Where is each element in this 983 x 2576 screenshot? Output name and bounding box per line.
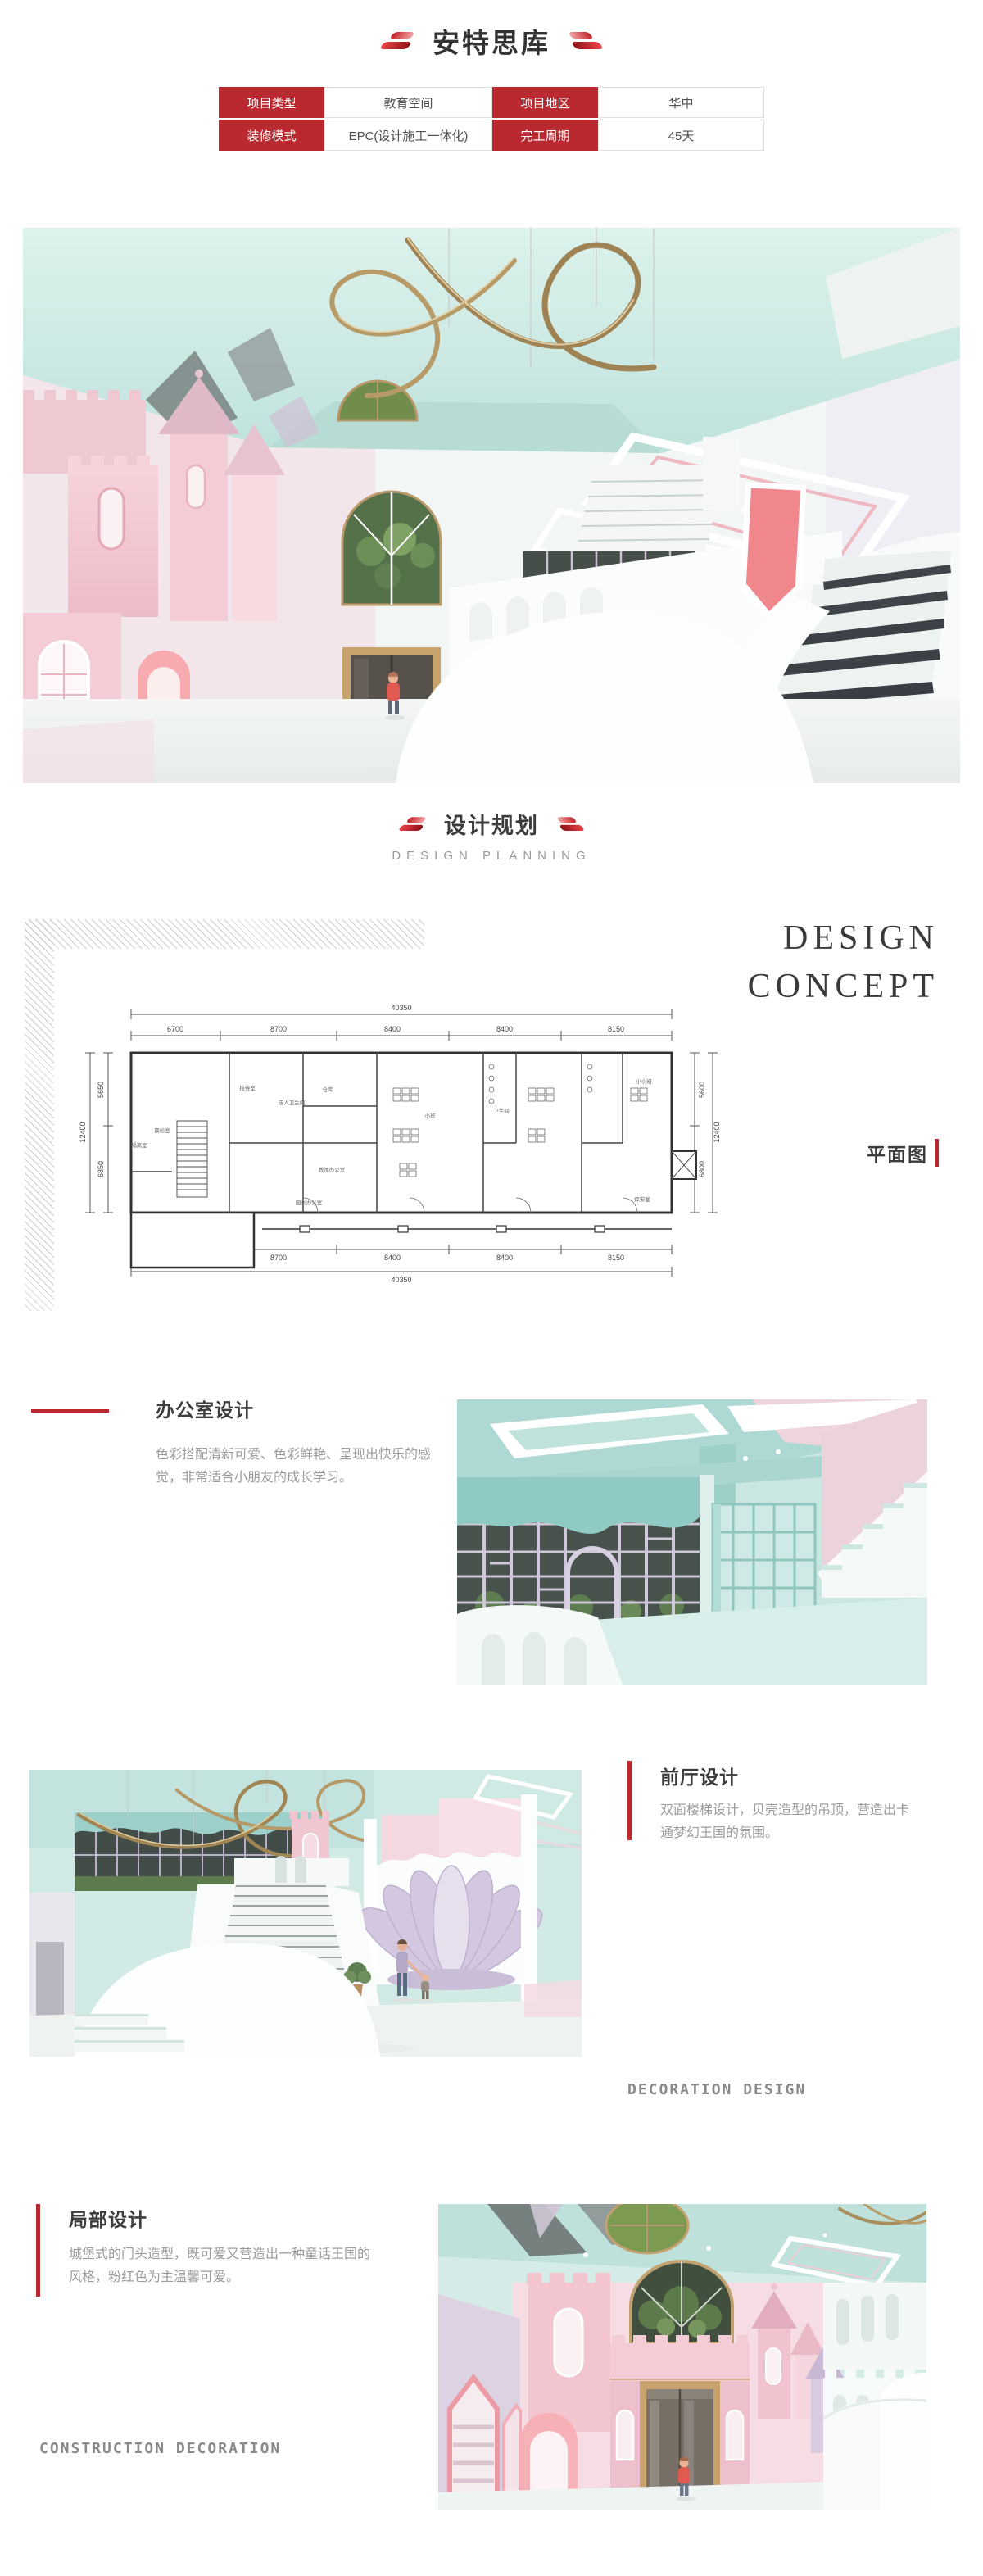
detail-title: 局部设计: [69, 2204, 147, 2232]
page-header: 安特思库: [0, 21, 983, 61]
svg-text:隔离室: 隔离室: [131, 1141, 147, 1149]
floor-plan-drawing: 40350 6700 8700 8400 8400 8150 6700 8700…: [57, 967, 721, 1286]
concept-line1: DESIGN: [562, 914, 939, 963]
hatch-band-vertical: [25, 919, 54, 1311]
project-info-table: 项目类型 教育空间 项目地区 华中 装修模式 EPC(设计施工一体化) 完工周期…: [219, 87, 764, 151]
dim-total-top: 40350: [391, 1004, 411, 1012]
round-skylight: [606, 2204, 688, 2253]
lavender-foreground-wall: [438, 2294, 520, 2510]
table-label-project-region: 项目地区: [492, 87, 598, 118]
green-arch-window: [342, 492, 441, 605]
table-value-project-region: 华中: [598, 87, 764, 118]
svg-text:教师办公室: 教师办公室: [319, 1166, 346, 1173]
table-label-decoration-mode: 装修模式: [219, 120, 324, 151]
svg-text:12400: 12400: [713, 1122, 721, 1142]
table-label-project-type: 项目类型: [219, 87, 324, 118]
lobby-body: 双面楼梯设计，贝壳造型的吊顶，营造出卡通梦幻王国的氛围。: [660, 1799, 916, 1845]
svg-text:8700: 8700: [270, 1025, 287, 1033]
office-render-image: [457, 1399, 927, 1685]
svg-text:6700: 6700: [167, 1025, 183, 1033]
office-body: 色彩搭配清新可爱、色彩鲜艳、呈现出快乐的感觉，非常适合小朋友的成长学习。: [156, 1444, 444, 1490]
office-accent-line: [31, 1409, 109, 1413]
svg-text:接待室: 接待室: [239, 1084, 256, 1091]
svg-text:园长办公室: 园长办公室: [296, 1199, 323, 1206]
lobby-caption: DECORATION DESIGN: [627, 2081, 806, 2098]
lobby-render-image: [29, 1770, 582, 2057]
detail-body: 城堡式的门头造型，既可爱又营造出一种童话王国的风格，粉红色为主温馨可爱。: [69, 2243, 374, 2289]
dim-total-bottom: 40350: [391, 1276, 411, 1284]
plan-tag-label: 平面图: [867, 1139, 928, 1167]
table-value-decoration-mode: EPC(设计施工一体化): [324, 120, 492, 151]
svg-text:6800: 6800: [698, 1161, 706, 1177]
hero-scene: [23, 228, 960, 783]
page: 安特思库 项目类型 教育空间 项目地区 华中 装修模式 EPC(设计施工一体化)…: [0, 0, 983, 2576]
planning-title: 设计规划: [444, 808, 539, 840]
section-dash-icon-left: [399, 814, 429, 832]
office-title: 办公室设计: [156, 1395, 254, 1422]
detail-scene: [438, 2204, 926, 2510]
detail-render-image: [438, 2204, 926, 2510]
svg-text:12400: 12400: [79, 1122, 87, 1142]
hero-render-image: [23, 228, 960, 783]
svg-text:8150: 8150: [608, 1025, 624, 1033]
lobby-title: 前厅设计: [660, 1762, 739, 1789]
svg-text:成人卫生间: 成人卫生间: [279, 1099, 306, 1106]
svg-text:8400: 8400: [496, 1254, 513, 1262]
table-label-completion-period: 完工周期: [492, 120, 598, 151]
hatch-band-horizontal: [25, 919, 424, 949]
svg-text:8400: 8400: [384, 1025, 401, 1033]
plan-tag-accent-bar: [935, 1139, 939, 1167]
detail-caption: CONSTRUCTION DECORATION: [39, 2440, 281, 2457]
white-wall-slits: [823, 2283, 926, 2370]
floor-plan-svg: 40350 6700 8700 8400 8400 8150 6700 8700…: [57, 967, 721, 1286]
office-scene: [457, 1399, 927, 1685]
title-dash-icon-right: [565, 29, 603, 52]
pink-stair-wall: [818, 1399, 927, 1598]
page-title: 安特思库: [433, 21, 550, 61]
svg-text:8150: 8150: [608, 1254, 624, 1262]
svg-text:卫生间: 卫生间: [493, 1107, 510, 1114]
svg-text:仓库: 仓库: [323, 1086, 334, 1093]
lobby-accent-bar: [627, 1761, 632, 1840]
svg-text:小班: 小班: [425, 1112, 437, 1119]
plan-tag-row: 平面图: [867, 1139, 939, 1167]
detail-accent-bar: [36, 2204, 40, 2297]
svg-text:6850: 6850: [97, 1161, 105, 1177]
svg-text:8700: 8700: [270, 1254, 287, 1262]
planning-subtitle: DESIGN PLANNING: [0, 849, 983, 863]
svg-text:8400: 8400: [496, 1025, 513, 1033]
white-tower-wall: [703, 437, 740, 510]
svg-text:8400: 8400: [384, 1254, 401, 1262]
table-value-project-type: 教育空间: [324, 87, 492, 118]
svg-text:小小班: 小小班: [636, 1077, 652, 1085]
lobby-scene: [29, 1770, 582, 2057]
svg-text:晨检室: 晨检室: [154, 1127, 170, 1134]
svg-text:保安室: 保安室: [634, 1195, 650, 1203]
planning-header: 设计规划: [0, 808, 983, 840]
title-dash-icon-left: [380, 29, 418, 52]
window-shelf-wall: [457, 1477, 703, 1629]
green-arch-window: [631, 2261, 732, 2343]
svg-text:5650: 5650: [97, 1082, 105, 1098]
section-dash-icon-right: [555, 814, 585, 832]
svg-text:5600: 5600: [698, 1082, 706, 1098]
table-value-completion-period: 45天: [598, 120, 764, 151]
